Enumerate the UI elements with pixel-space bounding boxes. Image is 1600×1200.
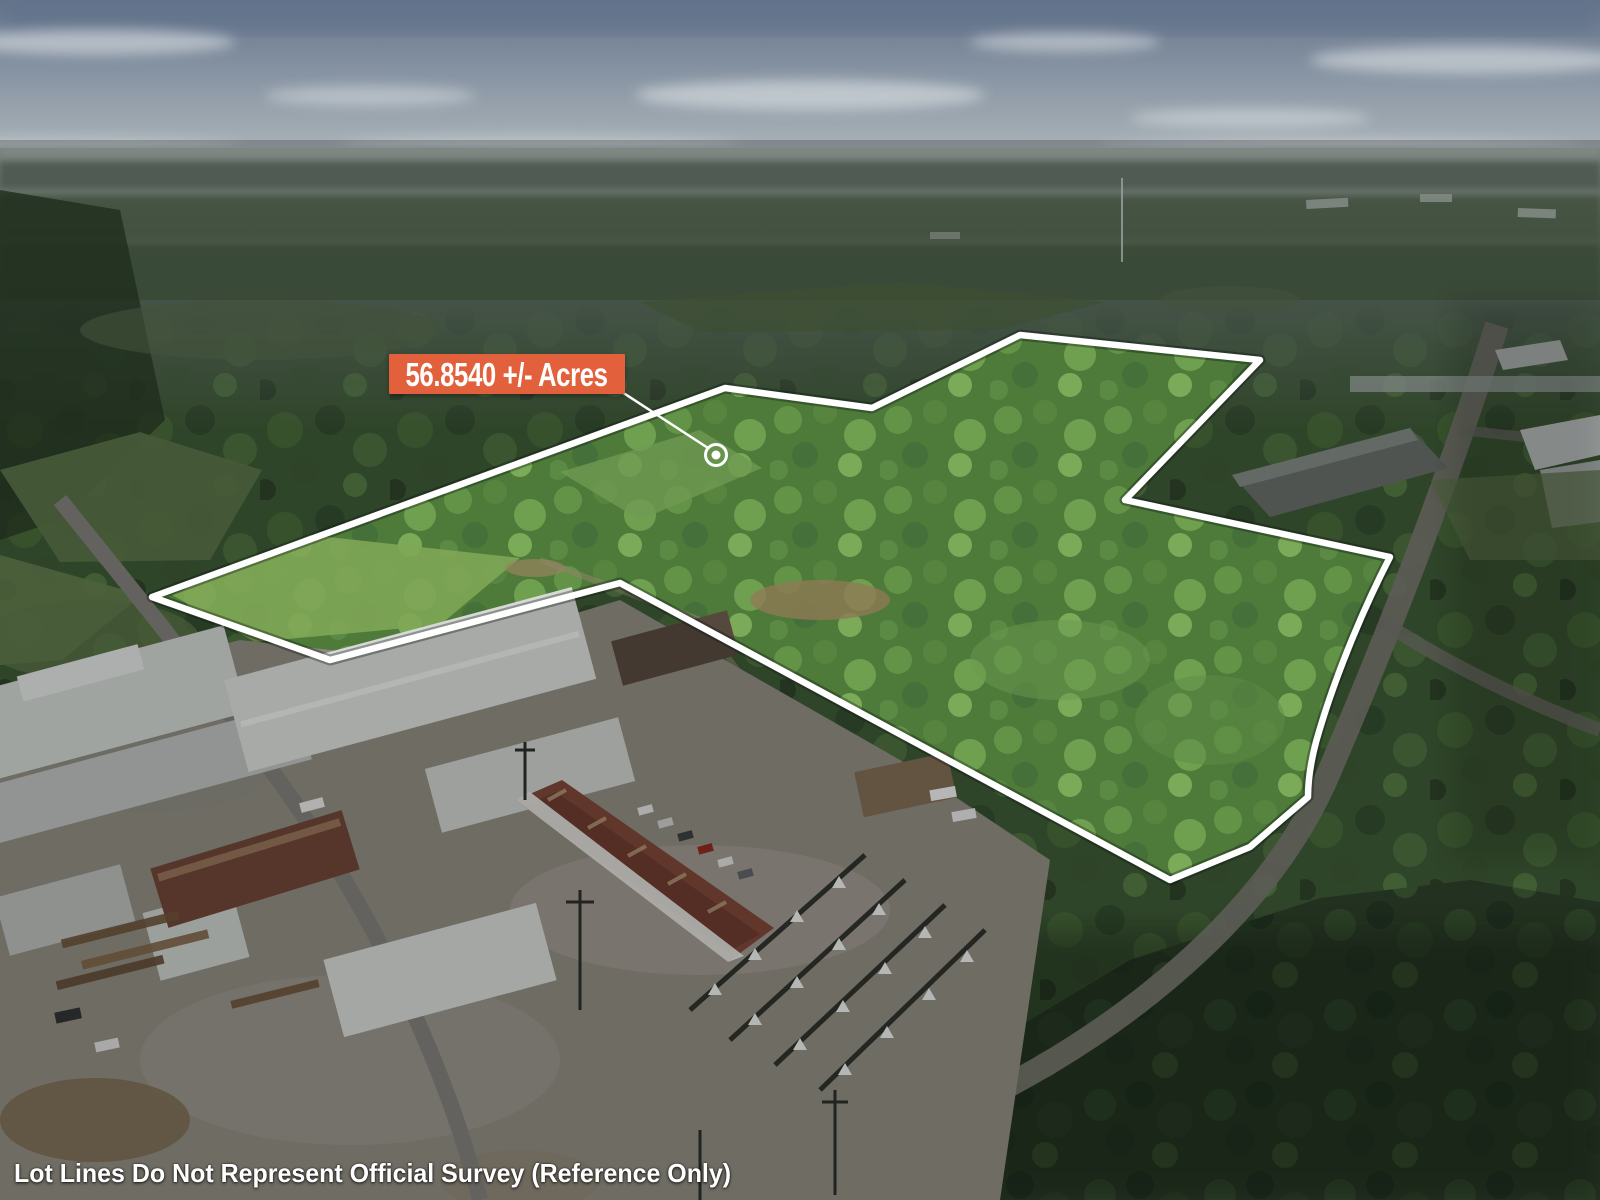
acreage-label: 56.8540 +/- Acres (389, 354, 625, 394)
property-marker-dot (712, 451, 721, 460)
listing-photo-page: { "photo": { "description": "Aerial dron… (0, 0, 1600, 1200)
acreage-label-text: 56.8540 +/- Acres (406, 358, 608, 391)
sky (0, 0, 1600, 161)
outside-dim-overlay (0, 140, 1600, 1200)
survey-disclaimer: Lot Lines Do Not Represent Official Surv… (14, 1158, 731, 1189)
aerial-photo (0, 0, 1600, 1200)
